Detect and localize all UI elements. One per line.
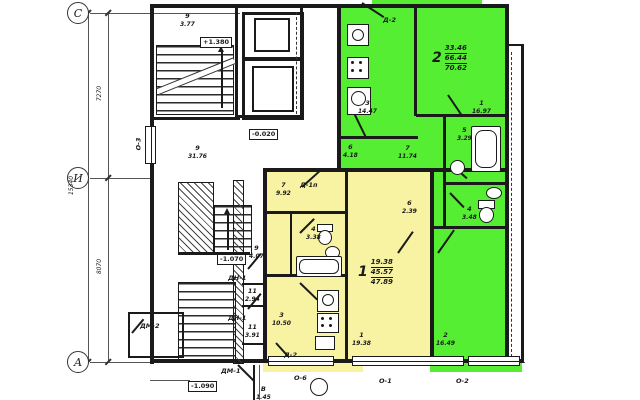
bathtub-inner-icon — [299, 259, 339, 274]
wall — [345, 170, 348, 278]
room-label: 94.07 — [249, 245, 264, 260]
total-area: 47.89 — [371, 278, 393, 287]
room-label: 93.77 — [180, 13, 195, 28]
porch-step — [150, 380, 190, 381]
wall — [432, 226, 507, 229]
stove-icon — [317, 313, 339, 333]
stair-arrow — [227, 214, 229, 250]
room-label: 43.48 — [462, 206, 477, 221]
shaft-hatched — [178, 182, 214, 254]
window-mark: О-3 — [134, 138, 142, 151]
wall — [150, 117, 240, 120]
dim-lower: 8070 — [96, 259, 103, 274]
wall — [263, 168, 267, 362]
room-label: 112.94 — [245, 288, 260, 303]
room-label: 216.49 — [436, 332, 455, 347]
elevator-cabin-1 — [254, 18, 290, 52]
wall-loggia — [505, 44, 524, 46]
living-area: 19.38 — [371, 258, 393, 268]
burner-dot — [351, 69, 354, 72]
apartment-number: 1 — [358, 264, 368, 280]
room-label: 64.18 — [343, 144, 358, 159]
loggia-dashed-line — [511, 52, 512, 357]
window-mark: О-2 — [456, 377, 469, 385]
axis-line-i — [90, 178, 152, 179]
door-mark: Д-2 — [284, 351, 297, 359]
apartment-1-zone — [263, 168, 433, 362]
door-mark: ДМ-2 — [140, 322, 159, 330]
axis-bubble-c: С — [67, 2, 89, 24]
elevation-mark: -1.090 — [188, 381, 217, 392]
axis-label-a: А — [74, 356, 82, 369]
room-label: В1.45 — [256, 386, 271, 400]
axis-bubble-a: А — [67, 351, 89, 373]
elevation-mark: +1.380 — [200, 37, 232, 48]
stair-arrow — [221, 52, 223, 108]
room-label: 310.50 — [272, 312, 291, 327]
total-area: 70.62 — [445, 64, 467, 73]
apartment-1-summary: 1 19.38 45.57 47.89 — [358, 258, 393, 286]
room-label: 116.97 — [472, 100, 491, 115]
washbasin-icon — [486, 187, 502, 199]
room-label: 931.76 — [188, 145, 207, 160]
burner-dot — [329, 324, 332, 327]
room-label: 62.39 — [402, 200, 417, 215]
floor-plan: С И А 15340 7270 8070 — [0, 0, 640, 400]
dim-upper: 7270 — [96, 86, 103, 101]
wall — [150, 4, 154, 364]
burner-dot — [359, 61, 362, 64]
burner-dot — [329, 317, 332, 320]
window-o6 — [268, 356, 334, 366]
dim-line-spans — [108, 13, 109, 363]
apartment-number: 2 — [432, 50, 442, 66]
wall — [337, 4, 341, 172]
wall — [414, 6, 417, 116]
burner-dot — [321, 317, 324, 320]
room-label: 314.47 — [358, 100, 377, 115]
room-label: 43.38 — [306, 226, 321, 241]
window-mark: О-1 — [379, 377, 392, 385]
burner-dot — [351, 61, 354, 64]
appliance-icon — [315, 336, 335, 350]
dim-total: 15340 — [68, 176, 75, 195]
wall — [445, 182, 507, 185]
wall — [345, 276, 348, 362]
toilet-bowl-icon — [479, 207, 494, 223]
wall — [150, 4, 509, 8]
door-mark: ДН-1 — [228, 274, 246, 282]
door-mark: ДН-1 — [228, 314, 246, 322]
door-mark: Д-2 — [383, 16, 396, 24]
wall — [290, 213, 292, 276]
kitchen-sink-bowl-icon — [352, 29, 364, 41]
axis-label-c: С — [74, 7, 82, 20]
burner-dot — [321, 324, 324, 327]
burner-dot — [359, 69, 362, 72]
door-mark: ДМ-1 — [221, 367, 240, 375]
kitchen-sink-bowl-icon — [322, 294, 334, 306]
usable-area: 66.44 — [445, 54, 467, 64]
apartment-2-summary: 2 33.46 66.44 70.62 — [432, 44, 467, 72]
window-o1 — [352, 356, 464, 366]
shaft-dashed-line — [296, 12, 297, 114]
entry-box-dm2 — [128, 312, 184, 358]
room-label: 79.92 — [276, 182, 291, 197]
room-label: 53.29 — [457, 127, 472, 142]
usable-area: 45.57 — [371, 268, 393, 278]
elevation-mark: -0.020 — [249, 129, 278, 140]
dim-line-total — [88, 13, 89, 363]
wall — [235, 4, 238, 119]
stove-icon — [347, 57, 369, 79]
room-label: 711.74 — [398, 145, 417, 160]
window-o3 — [145, 126, 156, 164]
porch-wall — [253, 365, 255, 400]
door-mark: Д-1п — [300, 181, 318, 189]
wall — [263, 211, 347, 214]
stair-arrow-head — [224, 208, 230, 214]
room-label: 119.38 — [352, 332, 371, 347]
elevation-mark: -1.070 — [217, 254, 246, 265]
axis-line-c — [90, 13, 240, 14]
window-o2 — [468, 356, 520, 366]
wall — [242, 283, 263, 285]
living-area: 33.46 — [445, 44, 467, 54]
wall — [242, 305, 263, 307]
wall — [430, 170, 434, 362]
room-label: 113.91 — [245, 324, 260, 339]
wall-loggia — [521, 44, 524, 363]
wall — [340, 136, 418, 139]
bathtub-inner-icon — [475, 130, 497, 168]
window-mark: О-6 — [294, 374, 307, 382]
porch-column-icon — [310, 378, 328, 396]
elevator-cabin-2 — [252, 66, 294, 112]
wall — [242, 343, 263, 345]
washbasin-icon — [450, 160, 465, 175]
